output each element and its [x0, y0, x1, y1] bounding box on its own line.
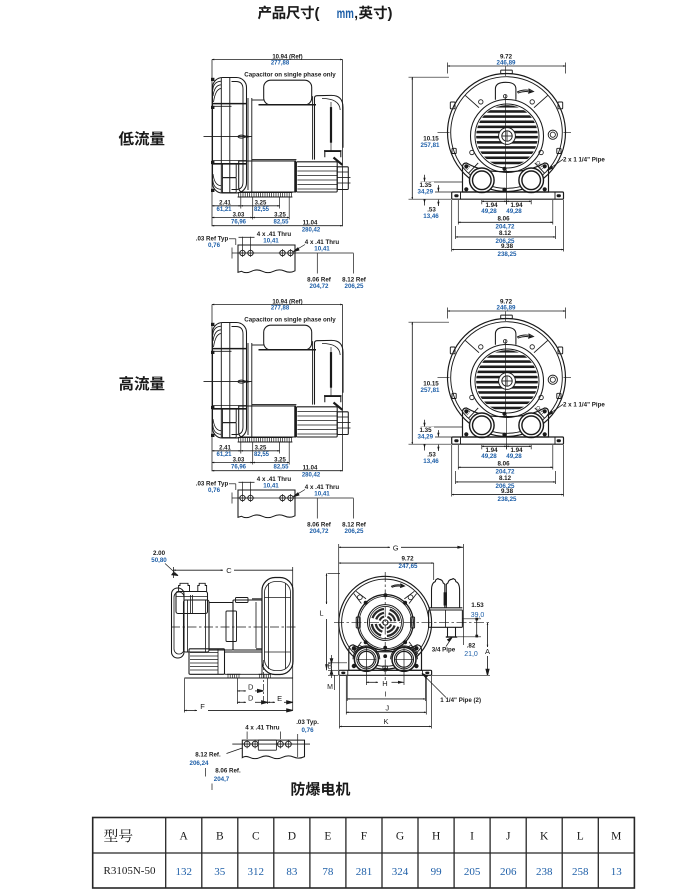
svg-text:35: 35	[214, 866, 226, 878]
svg-text:8.06 Ref.: 8.06 Ref.	[215, 768, 241, 775]
svg-text:K: K	[383, 717, 388, 726]
svg-text:H: H	[382, 679, 387, 688]
svg-text:D: D	[248, 694, 254, 703]
svg-text:D: D	[288, 830, 296, 842]
svg-text:2.00: 2.00	[153, 550, 166, 557]
svg-text:312: 312	[248, 866, 265, 878]
svg-text:K: K	[540, 830, 549, 842]
svg-text:E: E	[324, 830, 331, 842]
svg-text:78: 78	[322, 866, 334, 878]
svg-text:J: J	[385, 703, 389, 712]
svg-text:(: (	[315, 5, 320, 22]
svg-text:204,7: 204,7	[214, 776, 230, 783]
svg-text:F: F	[361, 830, 367, 842]
svg-text:A: A	[180, 830, 189, 842]
svg-text:F: F	[200, 702, 205, 711]
svg-text:.03 Typ.: .03 Typ.	[296, 719, 319, 726]
svg-text:206,24: 206,24	[190, 760, 209, 767]
svg-text:3/4 Pipe: 3/4 Pipe	[432, 647, 456, 654]
svg-text:205: 205	[464, 866, 481, 878]
svg-text:0,76: 0,76	[301, 727, 314, 734]
svg-text:G: G	[393, 543, 399, 552]
svg-text:1.53: 1.53	[471, 602, 484, 609]
svg-text:13: 13	[611, 866, 623, 878]
svg-text:281: 281	[356, 866, 373, 878]
svg-text:B: B	[327, 663, 332, 670]
svg-text:L: L	[319, 609, 323, 618]
svg-text:9.72: 9.72	[401, 556, 414, 563]
svg-text:247,65: 247,65	[399, 563, 418, 570]
svg-text:H: H	[432, 830, 440, 842]
svg-text:C: C	[226, 566, 232, 575]
svg-text:258: 258	[572, 866, 589, 878]
svg-text:.82: .82	[467, 643, 476, 650]
svg-text:A: A	[485, 647, 490, 656]
svg-text:99: 99	[431, 866, 443, 878]
svg-text:D: D	[248, 683, 254, 692]
svg-text:238: 238	[536, 866, 553, 878]
svg-text:G: G	[396, 830, 404, 842]
svg-text:324: 324	[392, 866, 409, 878]
svg-text:M: M	[611, 830, 621, 842]
svg-text:1 1/4" Pipe (2): 1 1/4" Pipe (2)	[440, 697, 481, 704]
svg-text:L: L	[577, 830, 584, 842]
svg-text:206: 206	[500, 866, 517, 878]
svg-text:4 x .41 Thru: 4 x .41 Thru	[245, 724, 280, 731]
svg-text:M: M	[327, 684, 333, 691]
svg-text:B: B	[216, 830, 224, 842]
svg-text:,: ,	[354, 6, 358, 21]
svg-text:C: C	[252, 830, 260, 842]
svg-text:83: 83	[286, 866, 298, 878]
svg-text:8.12 Ref.: 8.12 Ref.	[195, 752, 221, 759]
svg-text:21,0: 21,0	[464, 651, 478, 658]
svg-text:R3105N-50: R3105N-50	[104, 865, 156, 877]
svg-text:E: E	[277, 694, 282, 703]
svg-text:50,80: 50,80	[151, 557, 167, 564]
svg-text:132: 132	[175, 866, 192, 878]
svg-text:I: I	[384, 690, 386, 699]
svg-text:): )	[388, 5, 393, 22]
svg-text:I: I	[470, 830, 474, 842]
svg-text:J: J	[506, 830, 511, 842]
svg-text:mm: mm	[337, 6, 354, 21]
